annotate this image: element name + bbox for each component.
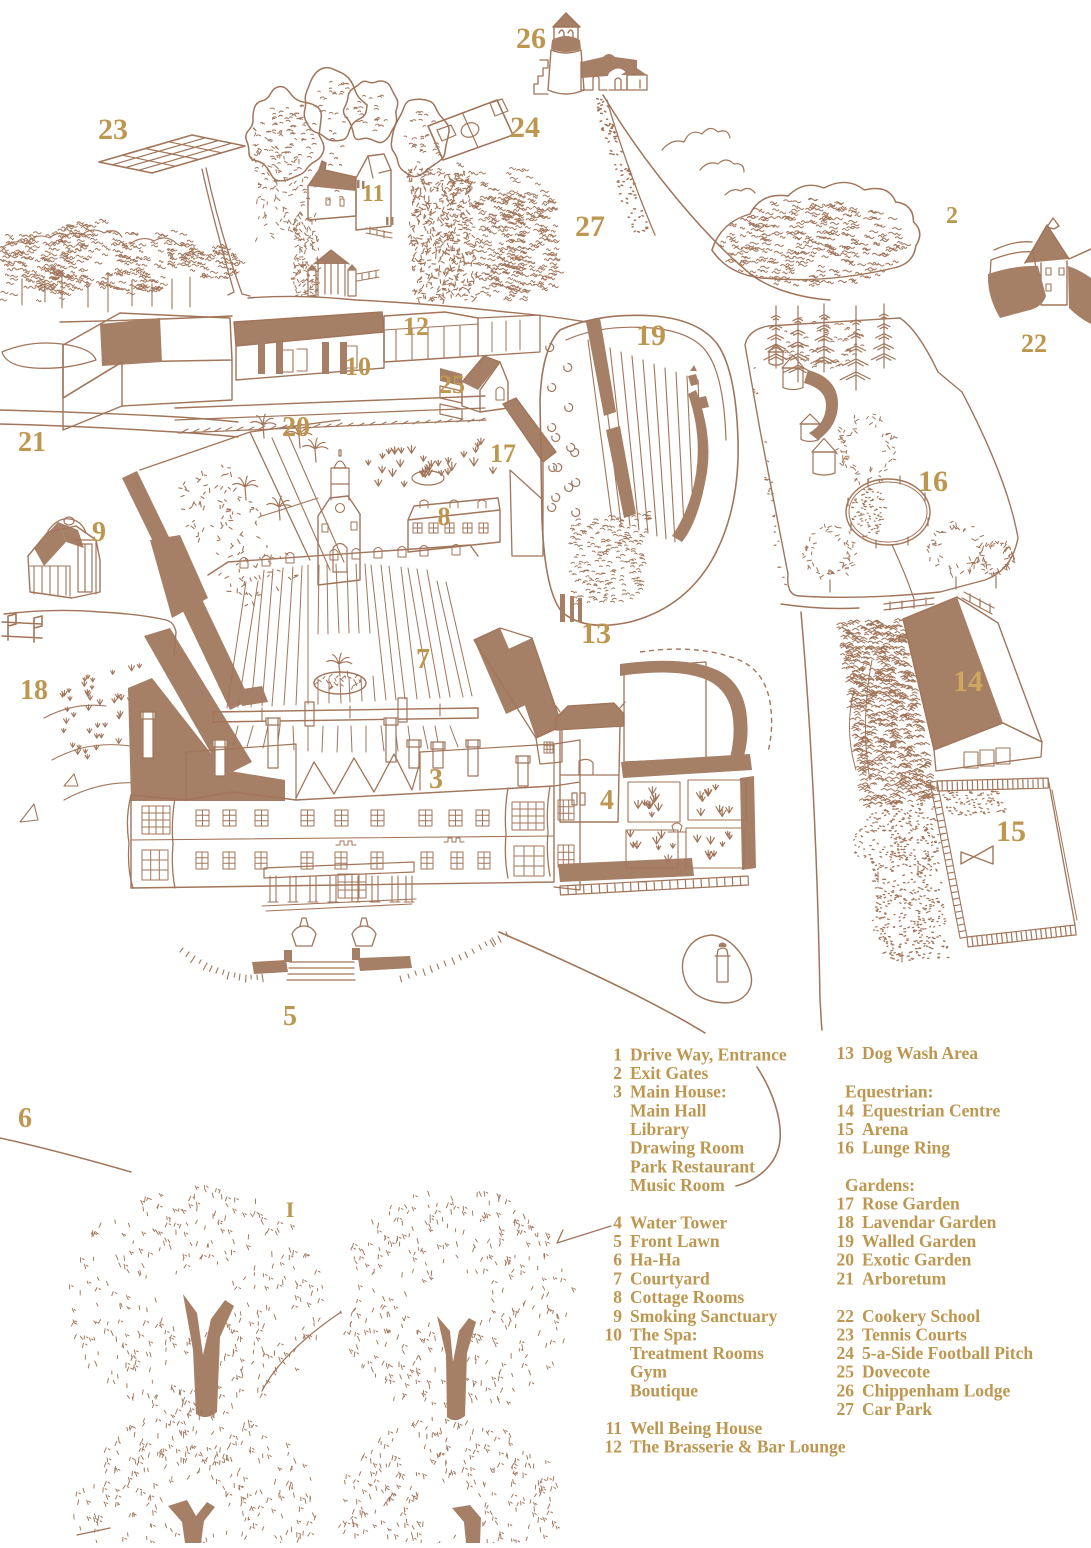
svg-text:15: 15	[837, 1119, 855, 1139]
svg-text:Rose Garden: Rose Garden	[862, 1193, 960, 1213]
svg-text:23: 23	[98, 113, 128, 146]
svg-text:27: 27	[575, 210, 605, 243]
svg-text:Boutique: Boutique	[630, 1380, 698, 1400]
svg-text:21: 21	[18, 427, 46, 458]
svg-text:13: 13	[837, 1043, 855, 1063]
svg-text:Park Restaurant: Park Restaurant	[630, 1156, 755, 1176]
svg-text:Smoking Sanctuary: Smoking Sanctuary	[630, 1306, 778, 1326]
svg-text:Lunge Ring: Lunge Ring	[862, 1137, 950, 1157]
svg-text:6: 6	[613, 1249, 622, 1269]
svg-text:16: 16	[837, 1137, 855, 1157]
svg-text:5: 5	[283, 1001, 297, 1032]
svg-text:The Brasserie & Bar Lounge: The Brasserie & Bar Lounge	[630, 1437, 846, 1457]
svg-text:7: 7	[416, 644, 430, 675]
svg-text:Equestrian Centre: Equestrian Centre	[862, 1100, 1000, 1120]
svg-text:Ha-Ha: Ha-Ha	[630, 1249, 681, 1269]
svg-text:24: 24	[510, 111, 540, 144]
svg-text:19: 19	[636, 319, 666, 352]
svg-text:Dog Wash Area: Dog Wash Area	[862, 1043, 978, 1063]
svg-text:Library: Library	[630, 1119, 690, 1139]
svg-text:23: 23	[837, 1324, 855, 1344]
svg-text:Exit Gates: Exit Gates	[630, 1063, 708, 1083]
svg-text:17: 17	[490, 439, 516, 468]
svg-text:Treatment Rooms: Treatment Rooms	[630, 1343, 764, 1363]
svg-text:10: 10	[345, 352, 371, 381]
svg-text:22: 22	[837, 1306, 855, 1326]
svg-text:20: 20	[837, 1249, 855, 1269]
svg-text:Gym: Gym	[630, 1361, 667, 1381]
svg-text:1: 1	[613, 1044, 622, 1064]
svg-text:Water Tower: Water Tower	[630, 1212, 728, 1232]
svg-text:11: 11	[605, 1418, 622, 1438]
svg-text:11: 11	[362, 181, 385, 207]
svg-text:Chippenham Lodge: Chippenham Lodge	[862, 1380, 1011, 1400]
svg-text:8: 8	[438, 502, 451, 531]
svg-text:Main House:: Main House:	[630, 1082, 727, 1102]
svg-text:Exotic Garden: Exotic Garden	[862, 1249, 972, 1269]
svg-text:18: 18	[837, 1212, 855, 1232]
svg-text:7: 7	[613, 1268, 622, 1288]
svg-text:Walled Garden: Walled Garden	[862, 1231, 977, 1251]
svg-text:10: 10	[605, 1324, 623, 1344]
svg-text:6: 6	[18, 1103, 32, 1134]
svg-text:Lavendar Garden: Lavendar Garden	[862, 1212, 997, 1232]
svg-text:14: 14	[953, 665, 983, 698]
svg-text:2: 2	[613, 1063, 622, 1083]
svg-text:9: 9	[92, 517, 106, 548]
svg-text:Car Park: Car Park	[862, 1399, 932, 1419]
svg-text:24: 24	[837, 1343, 855, 1363]
svg-text:15: 15	[996, 815, 1026, 848]
svg-text:9: 9	[613, 1306, 622, 1326]
svg-text:4: 4	[613, 1212, 622, 1232]
svg-text:Tennis Courts: Tennis Courts	[862, 1324, 967, 1344]
svg-text:25: 25	[837, 1361, 855, 1381]
svg-text:3: 3	[429, 764, 443, 795]
svg-text:Music Room: Music Room	[630, 1175, 725, 1195]
svg-text:Drawing Room: Drawing Room	[630, 1138, 745, 1158]
svg-text:Arboretum: Arboretum	[862, 1268, 947, 1288]
svg-text:26: 26	[516, 22, 546, 55]
svg-text:27: 27	[837, 1399, 855, 1419]
svg-text:14: 14	[837, 1100, 855, 1120]
svg-text:Gardens:: Gardens:	[845, 1175, 915, 1195]
svg-text:Drive Way, Entrance: Drive Way, Entrance	[630, 1044, 787, 1064]
svg-text:Arena: Arena	[862, 1119, 909, 1139]
svg-text:Cottage Rooms: Cottage Rooms	[630, 1287, 744, 1307]
svg-text:19: 19	[837, 1231, 855, 1251]
svg-text:3: 3	[613, 1082, 622, 1102]
svg-text:12: 12	[605, 1437, 623, 1457]
svg-text:5: 5	[613, 1231, 622, 1251]
svg-text:4: 4	[600, 785, 614, 816]
svg-text:Well Being House: Well Being House	[630, 1418, 762, 1438]
svg-text:21: 21	[837, 1268, 855, 1288]
svg-text:The Spa:: The Spa:	[630, 1324, 698, 1344]
svg-text:20: 20	[282, 412, 310, 443]
svg-text:5-a-Side Football Pitch: 5-a-Side Football Pitch	[862, 1343, 1033, 1363]
svg-text:Courtyard: Courtyard	[630, 1268, 710, 1288]
svg-text:25: 25	[439, 370, 465, 399]
svg-text:8: 8	[613, 1287, 622, 1307]
svg-text:17: 17	[837, 1193, 855, 1213]
svg-text:Front Lawn: Front Lawn	[630, 1231, 720, 1251]
svg-text:Dovecote: Dovecote	[862, 1361, 930, 1381]
svg-text:Main Hall: Main Hall	[630, 1100, 706, 1120]
svg-text:Equestrian:: Equestrian:	[845, 1081, 933, 1101]
svg-text:12: 12	[403, 312, 429, 341]
svg-text:2: 2	[946, 203, 958, 229]
svg-text:18: 18	[20, 675, 48, 706]
svg-text:22: 22	[1021, 329, 1047, 358]
svg-text:Cookery School: Cookery School	[862, 1306, 980, 1326]
svg-text:13: 13	[581, 617, 611, 650]
svg-text:16: 16	[918, 465, 948, 498]
svg-text:I: I	[286, 1197, 295, 1222]
svg-text:26: 26	[837, 1380, 855, 1400]
